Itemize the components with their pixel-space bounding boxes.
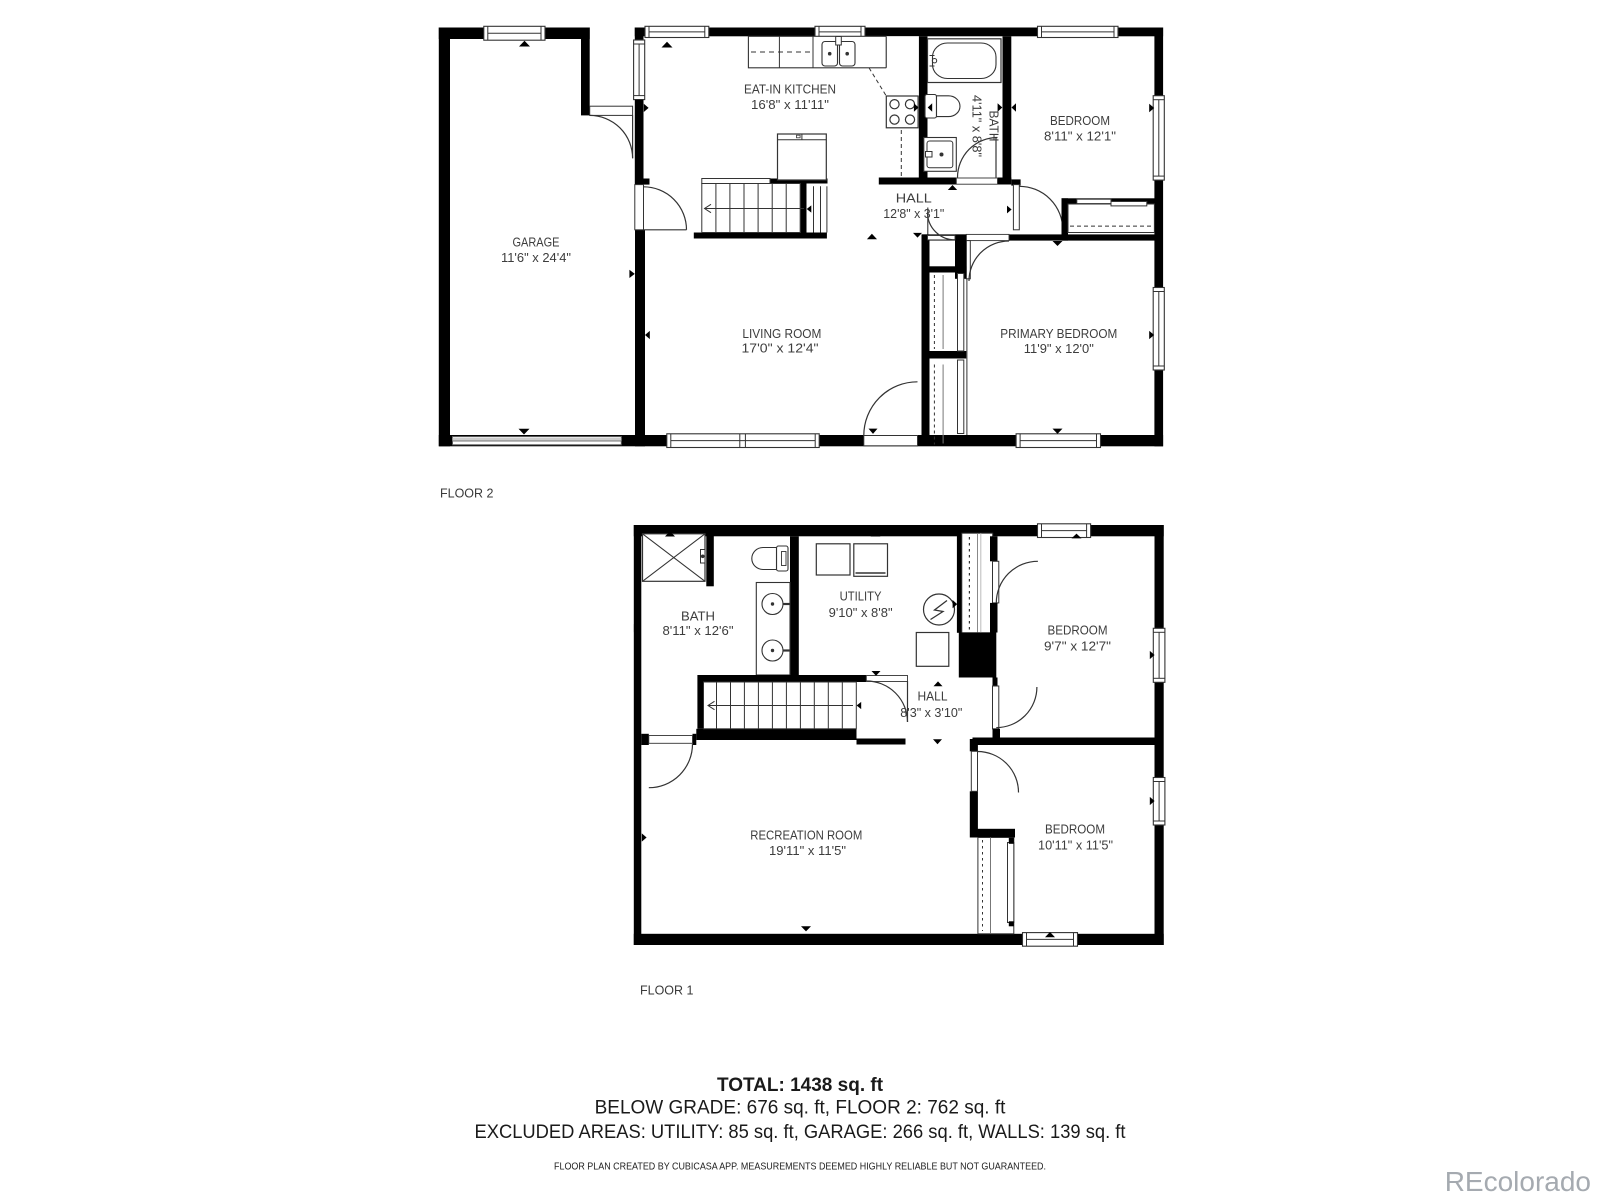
svg-text:BATH: BATH bbox=[681, 609, 715, 624]
svg-text:EXCLUDED AREAS: UTILITY: 85 sq: EXCLUDED AREAS: UTILITY: 85 sq. ft, GARA… bbox=[475, 1122, 1127, 1143]
svg-text:UTILITY: UTILITY bbox=[840, 589, 882, 604]
svg-text:9'10" x 8'8": 9'10" x 8'8" bbox=[829, 606, 893, 620]
svg-text:GARAGE: GARAGE bbox=[513, 234, 560, 249]
svg-text:BATH: BATH bbox=[987, 111, 1002, 142]
svg-text:BELOW GRADE: 676 sq. ft, FLOOR: BELOW GRADE: 676 sq. ft, FLOOR 2: 762 sq… bbox=[595, 1098, 1006, 1119]
svg-text:8'3" x 3'10": 8'3" x 3'10" bbox=[900, 706, 962, 720]
svg-text:PRIMARY BEDROOM: PRIMARY BEDROOM bbox=[1000, 326, 1117, 341]
svg-text:16'8" x 11'11": 16'8" x 11'11" bbox=[751, 98, 829, 112]
svg-text:8'11" x 12'1": 8'11" x 12'1" bbox=[1044, 129, 1116, 143]
svg-text:FLOOR PLAN CREATED BY CUBICASA: FLOOR PLAN CREATED BY CUBICASA APP. MEAS… bbox=[554, 1161, 1046, 1173]
svg-text:11'6" x 24'4": 11'6" x 24'4" bbox=[501, 251, 571, 265]
svg-text:11'9" x 12'0": 11'9" x 12'0" bbox=[1024, 342, 1094, 356]
svg-text:19'11" x 11'5": 19'11" x 11'5" bbox=[769, 844, 846, 858]
svg-text:HALL: HALL bbox=[896, 191, 932, 206]
svg-text:9'7" x 12'7": 9'7" x 12'7" bbox=[1044, 640, 1111, 654]
svg-text:BEDROOM: BEDROOM bbox=[1050, 113, 1110, 128]
svg-text:8'11" x 12'6": 8'11" x 12'6" bbox=[663, 624, 734, 638]
svg-text:4'11" x 8'8": 4'11" x 8'8" bbox=[970, 95, 984, 157]
svg-text:BEDROOM: BEDROOM bbox=[1045, 821, 1105, 836]
svg-text:REcolorado: REcolorado bbox=[1445, 1166, 1591, 1197]
svg-text:BEDROOM: BEDROOM bbox=[1048, 622, 1108, 637]
svg-text:FLOOR 1: FLOOR 1 bbox=[640, 984, 694, 998]
svg-text:LIVING ROOM: LIVING ROOM bbox=[742, 326, 821, 341]
svg-text:17'0" x 12'4": 17'0" x 12'4" bbox=[742, 342, 819, 356]
svg-text:TOTAL: 1438 sq. ft: TOTAL: 1438 sq. ft bbox=[717, 1075, 884, 1096]
svg-text:12'8" x 3'1": 12'8" x 3'1" bbox=[883, 207, 944, 221]
svg-text:EAT-IN KITCHEN: EAT-IN KITCHEN bbox=[744, 82, 836, 97]
svg-text:10'11" x 11'5": 10'11" x 11'5" bbox=[1038, 838, 1113, 852]
svg-text:RECREATION ROOM: RECREATION ROOM bbox=[750, 827, 862, 842]
svg-text:HALL: HALL bbox=[918, 689, 948, 704]
svg-text:FLOOR 2: FLOOR 2 bbox=[440, 487, 494, 501]
